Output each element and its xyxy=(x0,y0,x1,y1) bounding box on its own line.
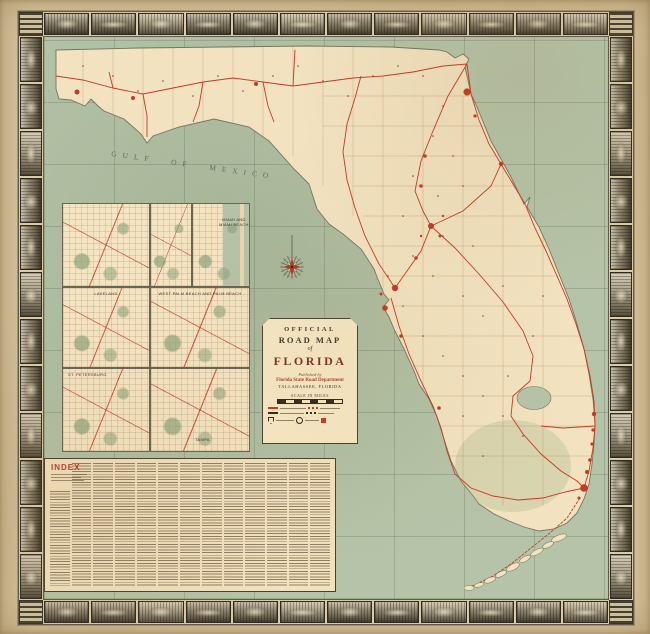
index-column xyxy=(224,463,244,586)
inset-title: LAKELAND xyxy=(63,292,149,297)
border-vignette xyxy=(374,13,419,35)
inset-map-lakeland: LAKELAND xyxy=(62,287,150,368)
cartouche-publisher-city: TALLAHASSEE, FLORIDA xyxy=(278,384,341,389)
legend-other-road-mark xyxy=(268,412,278,414)
legend-text-sim xyxy=(305,420,319,421)
inset-map-city-2 xyxy=(150,203,192,287)
border-vignette xyxy=(20,131,42,176)
index-subtitle-sim xyxy=(51,477,81,478)
compass-rose-icon xyxy=(280,235,304,279)
border-vignette xyxy=(610,507,632,552)
inset-map-tampa: TAMPA xyxy=(150,368,250,452)
border-vignette xyxy=(138,601,183,623)
cartouche-official: OFFICIAL xyxy=(284,326,336,333)
us-route-shield-icon xyxy=(268,417,274,424)
border-vignette xyxy=(44,601,89,623)
inset-map-city-1 xyxy=(62,203,150,287)
border-vignette-strip-top xyxy=(43,12,609,36)
border-vignette xyxy=(20,37,42,82)
index-column xyxy=(93,463,113,586)
border-vignette xyxy=(327,13,372,35)
index-title: INDEX xyxy=(51,463,80,472)
border-vignette xyxy=(20,460,42,505)
index-column xyxy=(289,463,309,586)
border-vignette xyxy=(280,13,325,35)
border-vignette xyxy=(20,413,42,458)
index-column xyxy=(245,463,265,586)
border-vignette xyxy=(610,37,632,82)
index-title-block: INDEX xyxy=(51,463,91,481)
inset-title: TAMPA xyxy=(195,438,249,443)
border-vignette xyxy=(138,13,183,35)
scale-bar-label: SCALE IN MILES xyxy=(291,393,329,398)
border-corner-ornament xyxy=(609,600,633,624)
town-index-panel: INDEX xyxy=(44,458,336,592)
border-vignette xyxy=(421,601,466,623)
border-vignette xyxy=(469,601,514,623)
legend-row xyxy=(268,417,352,424)
border-vignette xyxy=(610,460,632,505)
border-vignette xyxy=(610,366,632,411)
state-route-marker-icon xyxy=(296,417,303,424)
border-vignette xyxy=(280,601,325,623)
inset-map-st-petersburg: ST. PETERSBURG xyxy=(62,368,150,452)
border-vignette xyxy=(20,84,42,129)
cartouche-state-name: FLORIDA xyxy=(274,354,347,369)
border-vignette xyxy=(44,13,89,35)
border-vignette xyxy=(469,13,514,35)
legend-graded-road-mark xyxy=(308,407,318,409)
border-corner-ornament xyxy=(19,600,43,624)
index-subtitle-sim xyxy=(51,480,84,481)
cartouche-publisher: Florida State Road Department xyxy=(276,378,344,383)
title-cartouche: OFFICIAL ROAD MAP of FLORIDA Published b… xyxy=(262,318,358,444)
border-vignette xyxy=(516,13,561,35)
index-column xyxy=(158,463,178,586)
border-vignette xyxy=(610,178,632,223)
border-corner-ornament xyxy=(19,12,43,36)
border-vignette xyxy=(563,601,608,623)
border-vignette xyxy=(610,272,632,317)
lake-okeechobee xyxy=(517,387,551,410)
border-vignette xyxy=(20,225,42,270)
border-vignette xyxy=(327,601,372,623)
border-vignette xyxy=(516,601,561,623)
border-vignette xyxy=(20,319,42,364)
cartouche-of: of xyxy=(308,346,313,352)
border-vignette xyxy=(20,178,42,223)
legend-trail-mark xyxy=(306,412,316,414)
index-column xyxy=(310,463,330,586)
index-column xyxy=(267,463,287,586)
gulf-of-mexico-label: GULF OF MEXICO xyxy=(111,149,275,181)
border-vignette xyxy=(20,554,42,599)
legend-text-sim xyxy=(280,408,306,409)
border-vignette xyxy=(186,13,231,35)
border-vignette xyxy=(374,601,419,623)
legend-text-sim xyxy=(280,413,304,414)
map-sheet: GULF OF MEXICO MIAMI AND MIAMI BEACH LAK… xyxy=(0,0,650,634)
index-column xyxy=(180,463,200,586)
border-vignette xyxy=(91,13,136,35)
border-vignette xyxy=(610,554,632,599)
border-vignette-strip-right xyxy=(609,36,633,600)
florida-keys xyxy=(464,532,568,590)
inset-map-miami: MIAMI AND MIAMI BEACH xyxy=(192,203,250,287)
index-column xyxy=(137,463,157,586)
index-subtitle-sim xyxy=(51,474,87,475)
inset-title: MIAMI AND MIAMI BEACH xyxy=(219,218,249,228)
legend-row xyxy=(268,412,352,414)
border-vignette xyxy=(20,366,42,411)
border-vignette xyxy=(610,84,632,129)
border-vignette xyxy=(610,413,632,458)
border-corner-ornament xyxy=(609,12,633,36)
index-columns xyxy=(50,463,330,586)
scale-bar xyxy=(277,399,343,404)
border-vignette xyxy=(20,507,42,552)
border-vignette xyxy=(233,13,278,35)
border-vignette xyxy=(233,601,278,623)
legend-text-sim xyxy=(276,420,294,421)
border-vignette-strip-left xyxy=(19,36,43,600)
border-vignette xyxy=(610,131,632,176)
legend-text-sim xyxy=(318,413,334,414)
border-vignette-strip-bottom xyxy=(43,600,609,624)
index-column xyxy=(202,463,222,586)
cartouche-road-map: ROAD MAP xyxy=(279,335,342,345)
cartouche-published-by: Published by xyxy=(298,372,321,377)
legend-row xyxy=(268,407,352,409)
legend-paved-road-mark xyxy=(268,407,278,409)
border-vignette xyxy=(91,601,136,623)
border-vignette xyxy=(20,272,42,317)
border-vignette xyxy=(421,13,466,35)
legend-red-symbol xyxy=(321,418,326,423)
border-vignette xyxy=(610,319,632,364)
border-vignette xyxy=(610,225,632,270)
border-vignette xyxy=(186,601,231,623)
inset-title: WEST PALM BEACH AND PALM BEACH xyxy=(151,292,249,297)
inset-map-west-palm-beach: WEST PALM BEACH AND PALM BEACH xyxy=(150,287,250,368)
index-column xyxy=(50,491,70,586)
index-column xyxy=(115,463,135,586)
legend-text-sim xyxy=(320,408,340,409)
index-column xyxy=(72,463,92,586)
inset-title: ST. PETERSBURG xyxy=(68,373,149,378)
border-vignette xyxy=(563,13,608,35)
